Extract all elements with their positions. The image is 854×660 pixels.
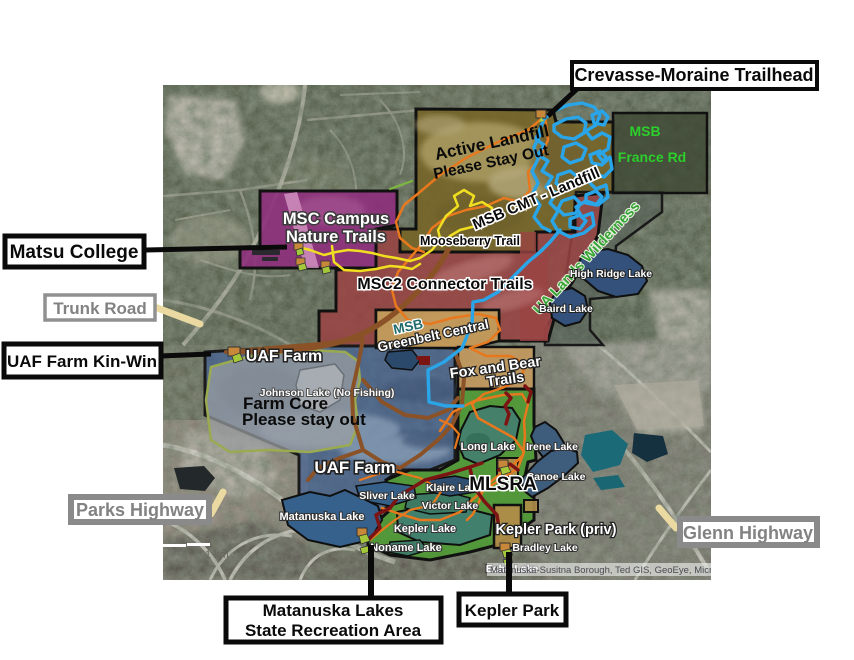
svg-text:Long Lake: Long Lake — [460, 441, 515, 453]
svg-text:MSC2 Connector Trails: MSC2 Connector Trails — [357, 276, 532, 293]
svg-text:Nature Trails: Nature Trails — [286, 228, 386, 246]
svg-text:Please stay out: Please stay out — [242, 410, 366, 429]
svg-text:Matsu College: Matsu College — [10, 242, 139, 263]
svg-text:Baird Lake: Baird Lake — [539, 303, 593, 315]
svg-text:Kepler Lake: Kepler Lake — [394, 523, 456, 535]
svg-text:Irene Lake: Irene Lake — [526, 441, 578, 453]
svg-text:Noname Lake: Noname Lake — [370, 542, 442, 554]
svg-text:High Ridge Lake: High Ridge Lake — [570, 268, 652, 280]
svg-text:MSB: MSB — [629, 123, 660, 139]
svg-text:Matanuska-Susitna Borough, Ted: Matanuska-Susitna Borough, Ted GIS, GeoE… — [490, 565, 722, 576]
svg-text:Glenn Highway: Glenn Highway — [683, 523, 813, 543]
svg-text:Mooseberry Trail: Mooseberry Trail — [420, 234, 520, 248]
svg-text:Kepler Park: Kepler Park — [465, 601, 560, 620]
svg-text:France Rd: France Rd — [618, 149, 686, 165]
svg-text:Parks Highway: Parks Highway — [76, 500, 204, 520]
svg-text:Matanuska Lakes: Matanuska Lakes — [263, 601, 404, 620]
svg-text:Trunk Road: Trunk Road — [53, 299, 147, 318]
svg-text:State Recreation Area: State Recreation Area — [245, 621, 422, 640]
svg-text:Sliver Lake: Sliver Lake — [359, 490, 415, 502]
svg-text:1 km: 1 km — [205, 549, 229, 561]
svg-text:Kepler Park (priv): Kepler Park (priv) — [496, 522, 617, 538]
svg-text:UAF Farm Kin-Win: UAF Farm Kin-Win — [7, 352, 157, 371]
svg-text:MLSRA: MLSRA — [469, 474, 537, 495]
svg-text:UAF Farm: UAF Farm — [246, 348, 322, 365]
svg-text:Bradley Lake: Bradley Lake — [512, 542, 578, 554]
svg-text:Crevasse-Moraine Trailhead: Crevasse-Moraine Trailhead — [574, 65, 813, 85]
svg-text:Victor Lake: Victor Lake — [422, 500, 479, 512]
svg-text:Matanuska Lake: Matanuska Lake — [280, 511, 365, 523]
svg-text:MSC Campus: MSC Campus — [283, 210, 389, 228]
svg-text:UAF Farm: UAF Farm — [314, 458, 395, 477]
